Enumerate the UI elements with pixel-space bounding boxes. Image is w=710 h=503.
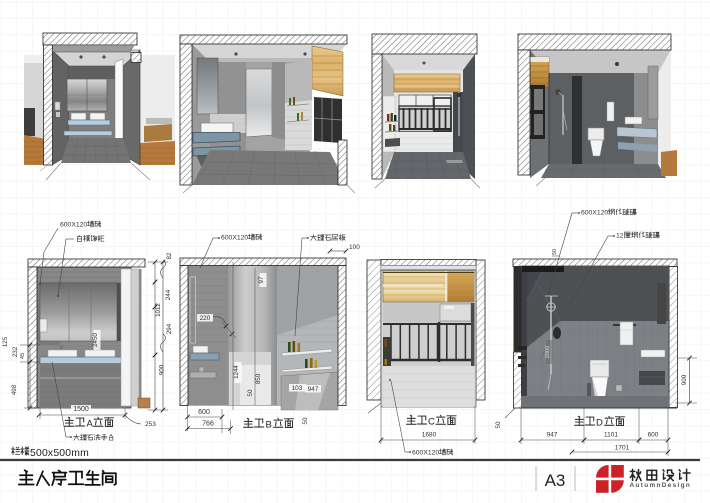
- svg-text:2450: 2450: [92, 333, 99, 347]
- svg-text:B: B: [266, 420, 272, 431]
- svg-text:97: 97: [258, 276, 265, 283]
- svg-text:1500: 1500: [73, 406, 89, 413]
- svg-text:500x500mm: 500x500mm: [30, 448, 89, 459]
- svg-text:600X120: 600X120: [60, 222, 87, 229]
- svg-text:50: 50: [495, 421, 502, 428]
- svg-text:103: 103: [292, 385, 303, 392]
- svg-text:45: 45: [20, 353, 26, 359]
- svg-text:1701: 1701: [615, 445, 630, 452]
- svg-text:1012: 1012: [155, 303, 162, 317]
- svg-text:100: 100: [349, 244, 360, 251]
- svg-text:600X120: 600X120: [412, 450, 439, 457]
- svg-text:600: 600: [648, 432, 659, 439]
- svg-text:947: 947: [308, 386, 319, 393]
- svg-text:1244: 1244: [233, 365, 240, 379]
- svg-text:600: 600: [198, 409, 210, 416]
- svg-text:50: 50: [247, 389, 254, 396]
- svg-text:2000: 2000: [545, 346, 551, 358]
- svg-text:50: 50: [302, 417, 309, 424]
- svg-text:C: C: [428, 417, 435, 428]
- svg-text:232: 232: [12, 346, 19, 357]
- svg-text:244: 244: [165, 289, 172, 300]
- svg-text:220: 220: [200, 315, 211, 322]
- svg-text:AutumnDesign: AutumnDesign: [630, 482, 692, 489]
- svg-text:1680: 1680: [422, 432, 437, 439]
- svg-text:125: 125: [2, 336, 9, 347]
- svg-text:D: D: [596, 418, 603, 429]
- svg-text:82: 82: [166, 252, 173, 259]
- svg-text:294: 294: [166, 323, 173, 334]
- svg-text:50: 50: [552, 249, 558, 255]
- svg-text:498: 498: [11, 384, 18, 395]
- svg-text:600X120: 600X120: [581, 210, 608, 217]
- svg-text:766: 766: [202, 421, 214, 428]
- svg-text:12: 12: [616, 233, 624, 240]
- svg-text:850: 850: [255, 373, 262, 384]
- svg-text:A3: A3: [545, 471, 566, 490]
- svg-text:A: A: [87, 419, 94, 430]
- svg-text:947: 947: [547, 432, 558, 439]
- svg-text:253: 253: [145, 421, 156, 428]
- svg-text:900: 900: [681, 374, 688, 385]
- svg-text:600X120: 600X120: [221, 235, 248, 242]
- svg-text:1101: 1101: [604, 432, 618, 439]
- svg-text:900: 900: [159, 364, 166, 375]
